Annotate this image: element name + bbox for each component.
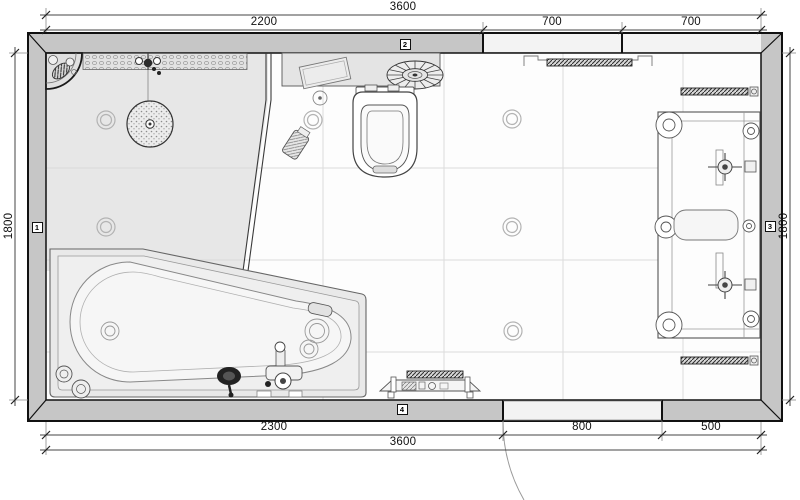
towel-rail-bottom bbox=[681, 356, 758, 365]
towel-rail-top bbox=[681, 87, 758, 96]
rain-shower-head bbox=[127, 101, 173, 147]
dim-right-1800: 1800 bbox=[778, 196, 790, 256]
dim-bottom-total: 3600 bbox=[373, 436, 433, 448]
dim-top-2200: 2200 bbox=[234, 16, 294, 28]
wall-marker-1: 1 bbox=[32, 222, 43, 233]
dim-top-700-b: 700 bbox=[661, 16, 721, 28]
dim-top-total: 3600 bbox=[373, 1, 433, 13]
wall-marker-3: 3 bbox=[765, 221, 776, 232]
door-swing-arc bbox=[503, 421, 524, 500]
wall-marker-2: 2 bbox=[400, 39, 411, 50]
shower-floor-zone bbox=[46, 53, 268, 271]
floorplan-canvas bbox=[0, 0, 800, 500]
dim-left-1800: 1800 bbox=[3, 196, 15, 256]
tiled-niche bbox=[83, 54, 247, 70]
dim-bottom-800: 800 bbox=[552, 421, 612, 433]
washstand-shelf bbox=[674, 210, 738, 240]
dim-bottom-500: 500 bbox=[681, 421, 741, 433]
wall-marker-4: 4 bbox=[397, 404, 408, 415]
door-opening bbox=[503, 400, 662, 421]
wall-hung-toilet bbox=[353, 85, 417, 177]
dim-bottom-2300: 2300 bbox=[244, 421, 304, 433]
floorplan-page: 3600 2200 700 700 1800 1800 2300 800 500… bbox=[0, 0, 800, 500]
dim-top-700-a: 700 bbox=[522, 16, 582, 28]
double-washstand bbox=[655, 112, 760, 338]
